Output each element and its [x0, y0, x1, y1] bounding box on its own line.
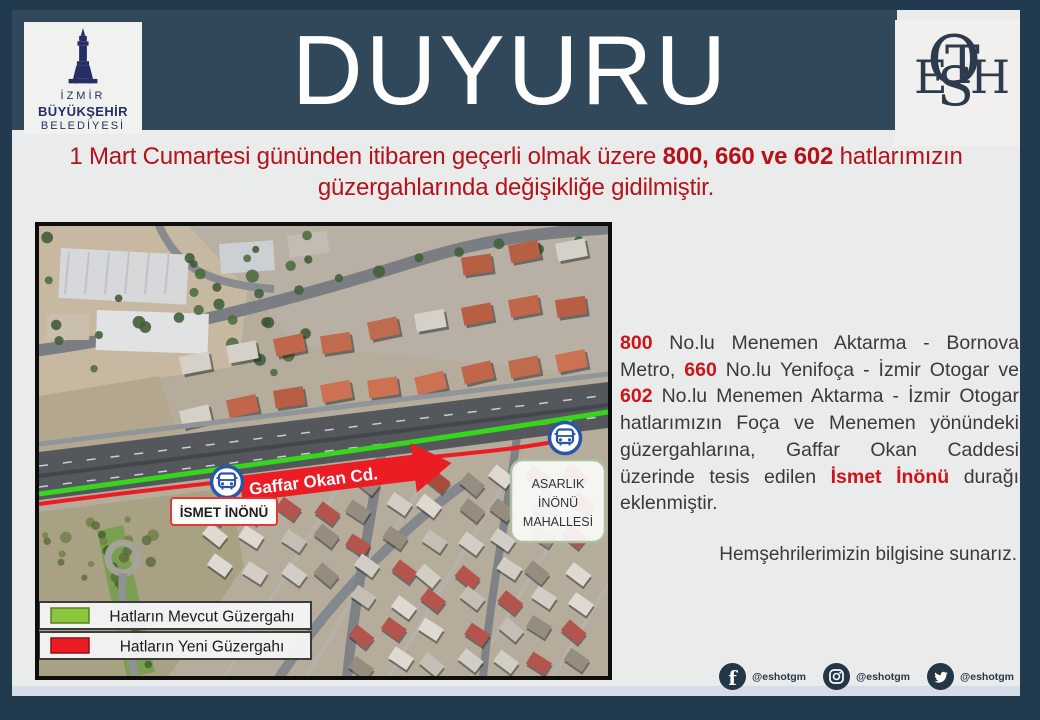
svg-text:İNÖNÜ: İNÖNÜ	[538, 496, 578, 510]
facebook-icon[interactable]: f	[719, 663, 746, 690]
instagram-link[interactable]: @eshotgm	[823, 663, 910, 690]
instagram-icon[interactable]	[823, 663, 850, 690]
twitter-handle: @eshotgm	[960, 671, 1014, 683]
satellite-map: Gaffar Okan Cd.	[39, 226, 608, 676]
header-band: DUYURU	[12, 10, 897, 130]
headline-line-2: güzergahlarında değişikliğe gidilmiştir.	[12, 172, 1020, 203]
monogram-letter-e: E	[914, 54, 948, 100]
bus-stop-icon-asarlik	[550, 423, 581, 454]
headline-route-numbers: 800, 660 ve 602	[663, 143, 834, 170]
announcement-body: 800 No.lu Menemen Aktarma - Bornova Metr…	[620, 330, 1019, 566]
svg-text:Hatların Yeni Güzergahı: Hatların Yeni Güzergahı	[120, 639, 285, 656]
asarlik-district-label: ASARLIK İNÖNÜ MAHALLESİ	[511, 460, 605, 542]
closing-line: Hemşehrilerimizin bilgisine sunarız.	[620, 544, 1017, 566]
route-number-800: 800	[620, 332, 653, 354]
svg-text:MAHALLESİ: MAHALLESİ	[523, 515, 593, 529]
social-media-row: f @eshotgm @eshotgm	[719, 663, 1014, 690]
facebook-handle: @eshotgm	[752, 671, 806, 683]
legend-current-route: Hatların Mevcut Güzergahı	[39, 602, 311, 629]
announcement-page: DUYURU İZMİR BÜYÜKŞEHİR BELEDİYESİ	[0, 0, 1040, 720]
legend-swatch-new	[51, 638, 89, 653]
svg-text:İSMET İNÖNÜ: İSMET İNÖNÜ	[180, 505, 269, 520]
bus-stop-icon-ismet	[212, 467, 243, 498]
route-map: Gaffar Okan Cd.	[35, 222, 612, 680]
legend-new-route: Hatların Yeni Güzergahı	[39, 632, 311, 659]
logo-text-izmir: İZMİR	[61, 90, 106, 104]
twitter-link[interactable]: @eshotgm	[927, 663, 1014, 690]
route-number-660: 660	[684, 359, 717, 381]
route-number-602: 602	[620, 385, 653, 407]
ismet-inonu-label: İSMET İNÖNÜ	[171, 498, 277, 525]
headline-line-1: 1 Mart Cumartesi gününden itibaren geçer…	[12, 141, 1020, 172]
eshot-monogram: O S T E H	[912, 32, 1002, 132]
facebook-link[interactable]: f @eshotgm	[719, 663, 806, 690]
eshot-logo: O S T E H	[895, 20, 1020, 146]
logo-text-buyuksehir: BÜYÜKŞEHİR	[38, 104, 128, 120]
izmir-clock-tower-icon	[60, 28, 106, 90]
announcement-headline: 1 Mart Cumartesi gününden itibaren geçer…	[12, 141, 1020, 203]
svg-text:ASARLIK: ASARLIK	[532, 477, 585, 491]
body-paragraph: 800 No.lu Menemen Aktarma - Bornova Metr…	[620, 330, 1019, 517]
page-title: DUYURU	[292, 21, 729, 119]
instagram-handle: @eshotgm	[856, 671, 910, 683]
content-area: DUYURU İZMİR BÜYÜKŞEHİR BELEDİYESİ	[12, 10, 1020, 696]
svg-text:Hatların Mevcut Güzergahı: Hatların Mevcut Güzergahı	[109, 609, 294, 626]
twitter-icon[interactable]	[927, 663, 954, 690]
monogram-letter-h: H	[970, 54, 1010, 100]
legend-swatch-current	[51, 608, 89, 623]
ismet-inonu-highlight: İsmet İnönü	[831, 466, 950, 488]
izmir-municipality-logo: İZMİR BÜYÜKŞEHİR BELEDİYESİ	[24, 22, 142, 134]
logo-text-belediyesi: BELEDİYESİ	[41, 120, 125, 134]
